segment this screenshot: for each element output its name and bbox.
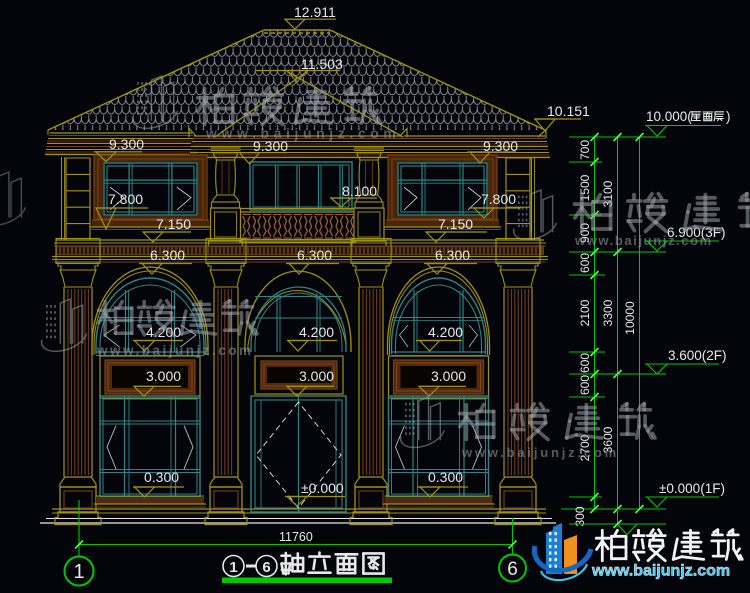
svg-text:9.300: 9.300 [483,138,518,154]
svg-text:10.000(: 10.000( [646,109,692,124]
svg-text:7.150: 7.150 [156,216,191,232]
svg-text:600: 600 [578,353,592,373]
svg-text:www.baijunjz.com: www.baijunjz.com [205,125,400,141]
svg-text:1: 1 [229,559,237,576]
svg-text:700: 700 [578,140,592,160]
svg-text:7.150: 7.150 [438,216,473,232]
svg-text:3.000: 3.000 [431,368,466,384]
svg-text:11760: 11760 [279,530,313,544]
svg-text:7.800: 7.800 [108,191,143,207]
svg-text:0.300: 0.300 [428,469,463,485]
svg-text:6: 6 [507,559,518,580]
svg-text:4.200: 4.200 [299,324,334,340]
svg-text:3.000: 3.000 [299,368,334,384]
svg-text:10.151: 10.151 [547,103,590,119]
svg-text:6: 6 [262,559,270,576]
svg-text:www.baijunjz.com: www.baijunjz.com [461,445,619,460]
svg-text:6.300: 6.300 [297,247,332,263]
svg-text:600: 600 [578,375,592,395]
svg-text:10000: 10000 [623,301,637,335]
svg-text:600: 600 [578,253,592,273]
svg-text:300: 300 [573,506,587,526]
svg-text:6.300: 6.300 [435,247,470,263]
svg-text:±0.000(1F): ±0.000(1F) [659,481,725,496]
svg-text:7.800: 7.800 [481,191,516,207]
svg-text:6.300: 6.300 [150,247,185,263]
svg-text:2100: 2100 [578,299,592,326]
svg-text:8.100: 8.100 [342,183,377,199]
svg-text:11.503: 11.503 [301,56,343,72]
svg-text:3.600(2F): 3.600(2F) [668,348,727,363]
svg-text:3300: 3300 [601,299,615,326]
svg-text:0.300: 0.300 [144,469,179,485]
svg-text:±0.000: ±0.000 [301,480,344,496]
svg-text:www.baijunjz.com: www.baijunjz.com [591,563,730,580]
svg-text:9.300: 9.300 [109,136,144,152]
svg-text:): ) [726,109,731,124]
svg-text:www.baijunjz.com: www.baijunjz.com [574,233,713,248]
svg-text:12.911: 12.911 [294,4,336,20]
svg-text:3.000: 3.000 [146,368,181,384]
svg-text:1: 1 [73,561,84,583]
svg-text:4.200: 4.200 [428,324,463,340]
svg-text:www.baijunjz.com: www.baijunjz.com [96,343,254,358]
